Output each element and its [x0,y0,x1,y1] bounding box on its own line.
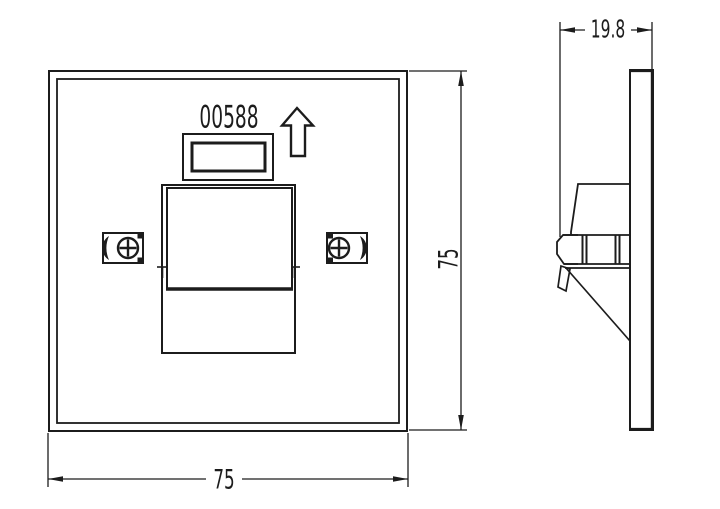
arrowhead-left [560,27,575,33]
technical-drawing-canvas: 00588 [0,0,720,509]
width-dimension-value: 75 [213,464,234,495]
dimension-width: 75 [48,433,408,496]
label-window-inner [192,143,265,171]
arrowhead-bottom [458,415,464,430]
arrowhead-right [393,476,408,482]
arrowhead-right [637,27,652,33]
right-screw [327,233,367,263]
side-view [557,70,653,430]
screw-shadow-crescent [360,236,367,260]
label-window-outer [183,134,273,180]
rocker-switch [167,188,292,289]
height-dimension-value: 75 [433,248,464,269]
switch-body-profile [571,184,630,235]
arrowhead-top [458,71,464,86]
dimension-depth: 19.8 [560,15,652,237]
label-window [183,134,273,180]
faceplate-profile [630,70,653,430]
part-number: 00588 [199,100,258,136]
arrowhead-left [48,476,63,482]
rocker-tip-profile [557,235,578,264]
dimension-height: 75 [409,71,467,430]
mounting-base-profile [557,235,630,268]
front-view: 00588 [49,71,407,431]
up-arrow-icon [282,108,313,156]
left-screw [102,233,143,263]
depth-dimension-value: 19.8 [591,15,625,44]
switch-aperture [157,185,300,353]
faceplate-drawing: 00588 [0,0,720,509]
aperture-frame [162,185,295,353]
spring-wire [566,268,630,341]
